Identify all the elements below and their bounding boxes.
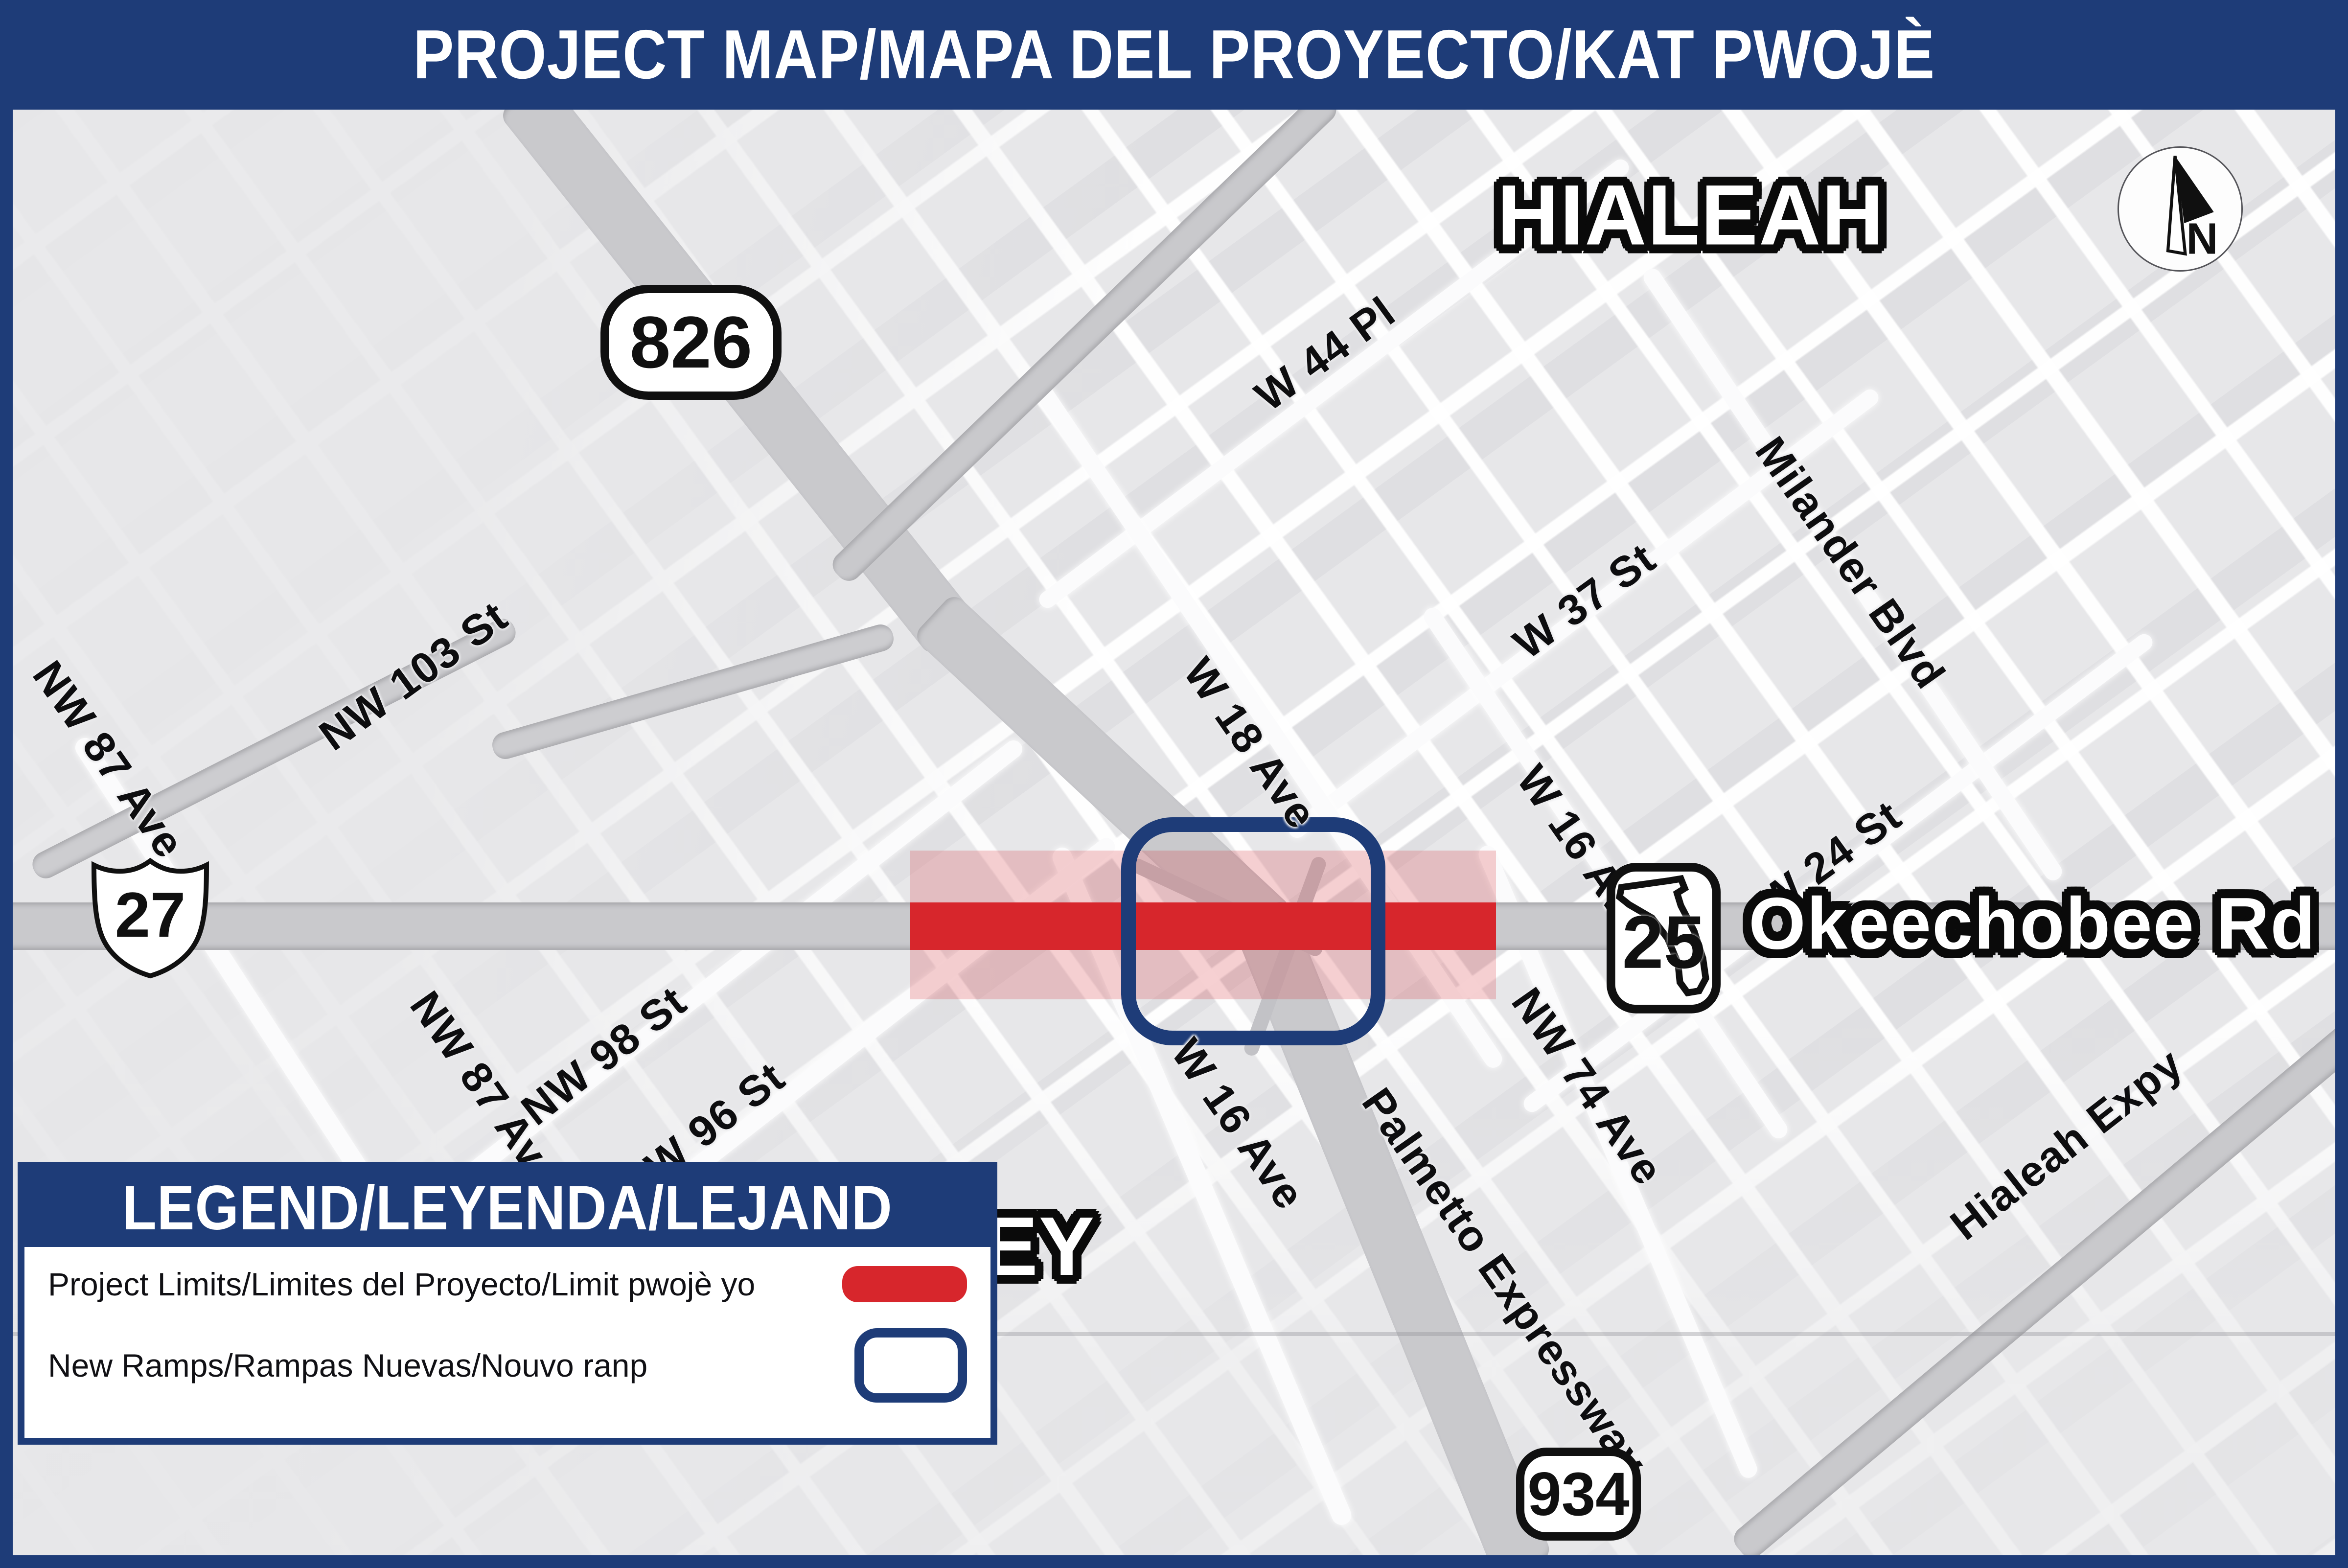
legend-title: LEGEND/LEYENDA/LEJAND bbox=[122, 1172, 893, 1244]
north-arrow: N bbox=[2118, 146, 2243, 272]
route-shield-us27: 27 bbox=[89, 856, 211, 981]
legend-body: Project Limits/Limites del Proyecto/Limi… bbox=[24, 1247, 990, 1403]
route-shield-fl25: 25 bbox=[1606, 862, 1721, 1014]
route-shield-us27-number: 27 bbox=[115, 879, 186, 950]
city-label-hialeah: HIALEAH bbox=[1497, 166, 1885, 265]
north-label: N bbox=[2186, 214, 2218, 263]
legend-item-label: New Ramps/Rampas Nuevas/Nouvo ranp bbox=[48, 1347, 647, 1384]
route-shield-934: 934 bbox=[1516, 1448, 1641, 1541]
page-title: PROJECT MAP/MAPA DEL PROYECTO/KAT PWOJÈ bbox=[413, 15, 1935, 95]
route-shield-826: 826 bbox=[600, 285, 782, 400]
route-shield-826-number: 826 bbox=[630, 300, 752, 385]
project-map-poster: PROJECT MAP/MAPA DEL PROYECTO/KAT PWOJÈ bbox=[0, 0, 2348, 1568]
route-shield-934-number: 934 bbox=[1527, 1459, 1630, 1529]
new-ramps-box bbox=[1121, 817, 1385, 1045]
legend-header: LEGEND/LEYENDA/LEJAND bbox=[24, 1169, 990, 1247]
title-bar: PROJECT MAP/MAPA DEL PROYECTO/KAT PWOJÈ bbox=[0, 0, 2348, 110]
compass-needle-icon: N bbox=[2119, 148, 2241, 270]
new-ramps-swatch bbox=[854, 1328, 967, 1403]
legend-item-project-limits: Project Limits/Limites del Proyecto/Limi… bbox=[48, 1266, 967, 1303]
road-label-okeechobee: Okeechobee Rd bbox=[1749, 881, 2316, 966]
route-shield-fl25-number: 25 bbox=[1622, 901, 1705, 984]
legend-item-label: Project Limits/Limites del Proyecto/Limi… bbox=[48, 1266, 755, 1303]
project-limits-swatch bbox=[842, 1266, 967, 1302]
legend-panel: LEGEND/LEYENDA/LEJAND Project Limits/Lim… bbox=[18, 1162, 997, 1445]
legend-item-new-ramps: New Ramps/Rampas Nuevas/Nouvo ranp bbox=[48, 1328, 967, 1403]
